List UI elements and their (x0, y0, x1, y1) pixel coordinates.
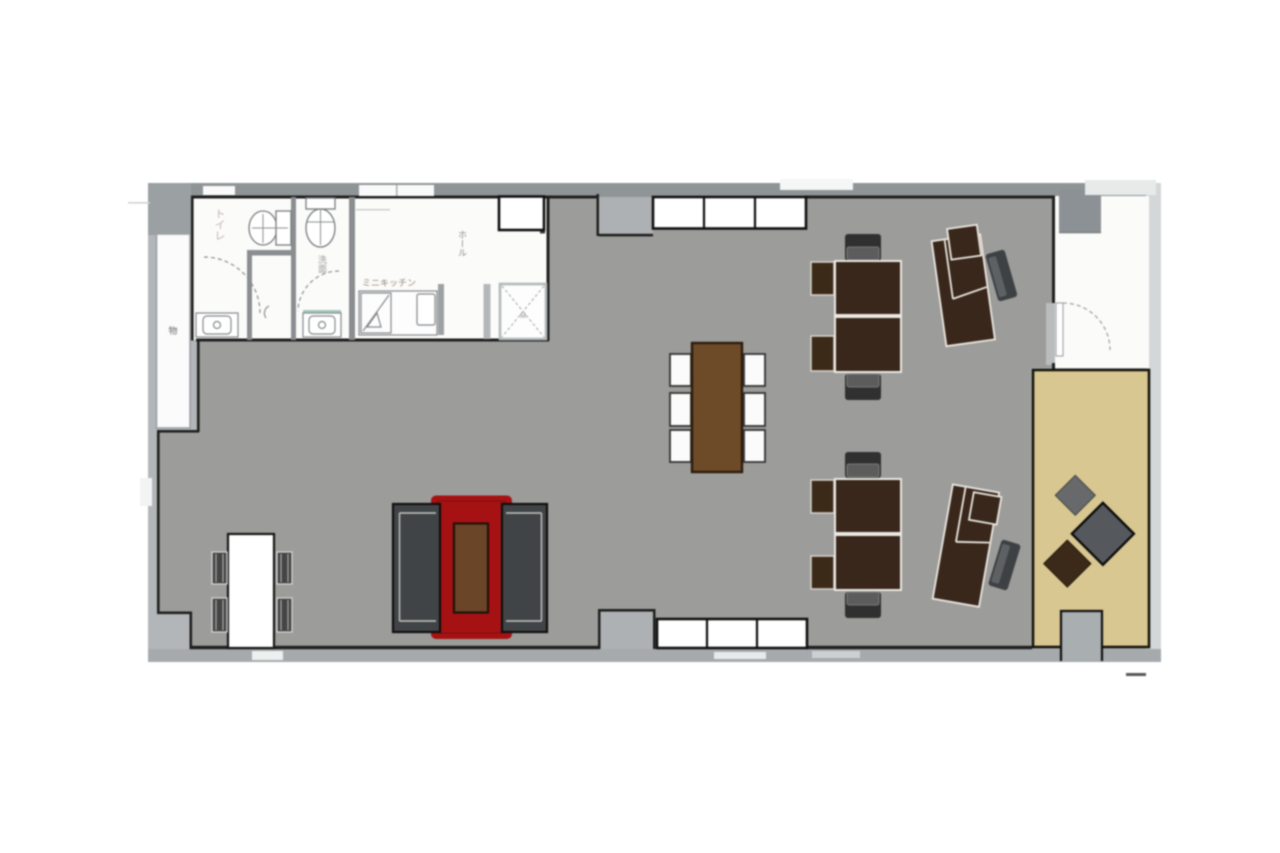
svg-text:洗面: 洗面 (317, 254, 327, 274)
svg-text:ホール: ホール (457, 230, 467, 257)
svg-text:物: 物 (168, 325, 177, 336)
svg-text:M: M (520, 313, 526, 320)
svg-text:ミニキッチン: ミニキッチン (362, 278, 416, 288)
svg-text:トイレ: トイレ (213, 208, 225, 241)
